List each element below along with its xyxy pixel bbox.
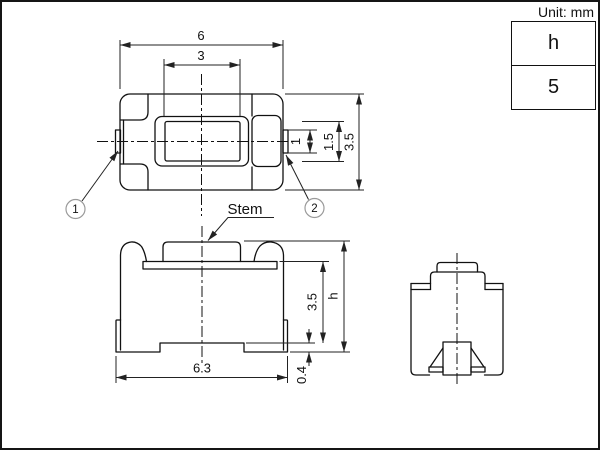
dim-total-height: h: [244, 241, 350, 352]
side-foot-left: [429, 367, 443, 372]
top-view: 6 3 3.5 1.5: [66, 28, 364, 219]
dim-label-stem-width: 3: [197, 48, 204, 63]
front-view: Stem 6.3 0.4 3.5: [116, 201, 350, 384]
drawing-sheet: Unit: mm h 5: [0, 0, 600, 450]
side-shoulder: [431, 272, 486, 290]
dim-label-front-width: 6.3: [193, 361, 211, 376]
dim-label-total-height: h: [326, 292, 341, 299]
dim-label-front-body-height: 3.5: [305, 293, 320, 311]
callout-2-number: 2: [311, 203, 317, 215]
switch-drawing: 6 3 3.5 1.5: [2, 2, 600, 450]
dim-label-terminal-thickness: 0.4: [294, 366, 309, 384]
front-flange: [143, 262, 277, 270]
dim-label-body-depth: 3.5: [342, 133, 357, 151]
dim-label-terminal-width: 1: [288, 138, 303, 145]
dim-label-top-width: 6: [197, 28, 204, 43]
callout-1: 1: [66, 151, 118, 219]
callout-1-number: 1: [72, 204, 78, 216]
dim-contact-width: 1.5: [302, 122, 344, 162]
stem-label: Stem: [227, 201, 262, 218]
dim-label-contact-width: 1.5: [321, 133, 336, 151]
dim-terminal-width: 1: [288, 130, 317, 153]
dim-front-width: 6.3: [116, 356, 288, 383]
stem-callout: Stem: [208, 201, 274, 241]
side-view: [411, 253, 503, 387]
dim-terminal-thickness: 0.4: [246, 329, 350, 384]
side-foot-right: [471, 367, 485, 372]
callout-2: 2: [286, 155, 324, 218]
